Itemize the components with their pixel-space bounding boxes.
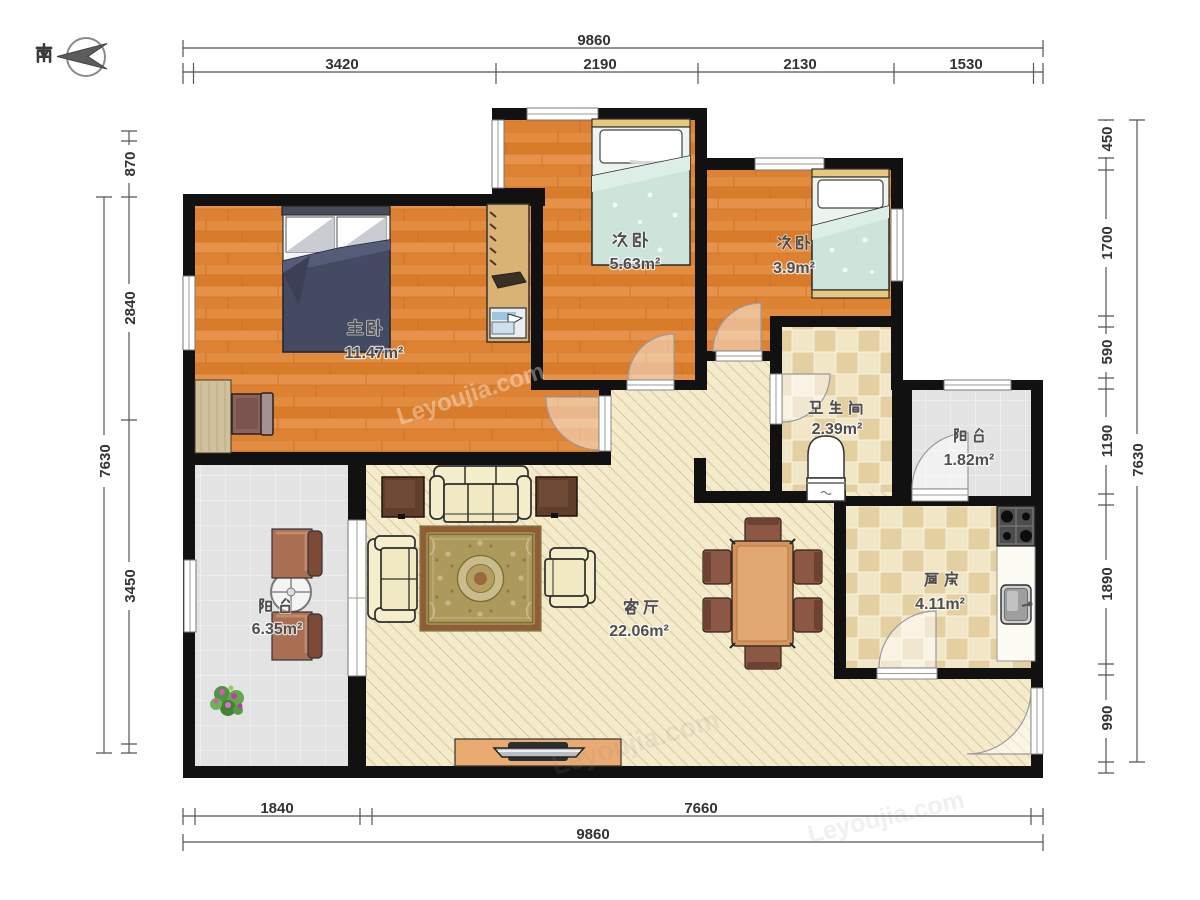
svg-text:1840: 1840 <box>260 800 293 817</box>
svg-text:6.35m²: 6.35m² <box>252 621 303 638</box>
svg-text:870: 870 <box>122 151 139 176</box>
svg-text:5.63m²: 5.63m² <box>610 256 661 273</box>
svg-text:2840: 2840 <box>122 291 139 324</box>
svg-text:3.9m²: 3.9m² <box>773 260 815 277</box>
svg-text:4.11m²: 4.11m² <box>915 596 965 613</box>
svg-text:2.39m²: 2.39m² <box>812 421 863 438</box>
svg-text:11.47m²: 11.47m² <box>345 345 404 362</box>
svg-text:590: 590 <box>1099 339 1116 364</box>
svg-text:9860: 9860 <box>577 32 610 49</box>
svg-text:7630: 7630 <box>97 444 114 477</box>
svg-text:1190: 1190 <box>1099 425 1116 458</box>
svg-text:2130: 2130 <box>783 56 816 73</box>
svg-text:450: 450 <box>1099 126 1116 151</box>
svg-text:9860: 9860 <box>576 826 609 843</box>
svg-text:2190: 2190 <box>583 56 616 73</box>
svg-text:22.06m²: 22.06m² <box>609 623 669 640</box>
svg-text:7660: 7660 <box>684 800 717 817</box>
svg-text:1.82m²: 1.82m² <box>944 452 995 469</box>
svg-text:1700: 1700 <box>1099 226 1116 259</box>
svg-text:1530: 1530 <box>949 56 982 73</box>
svg-text:7630: 7630 <box>1130 443 1147 476</box>
svg-text:3420: 3420 <box>325 56 358 73</box>
svg-text:3450: 3450 <box>122 569 139 602</box>
svg-text:990: 990 <box>1099 705 1116 730</box>
svg-text:1890: 1890 <box>1099 567 1116 600</box>
